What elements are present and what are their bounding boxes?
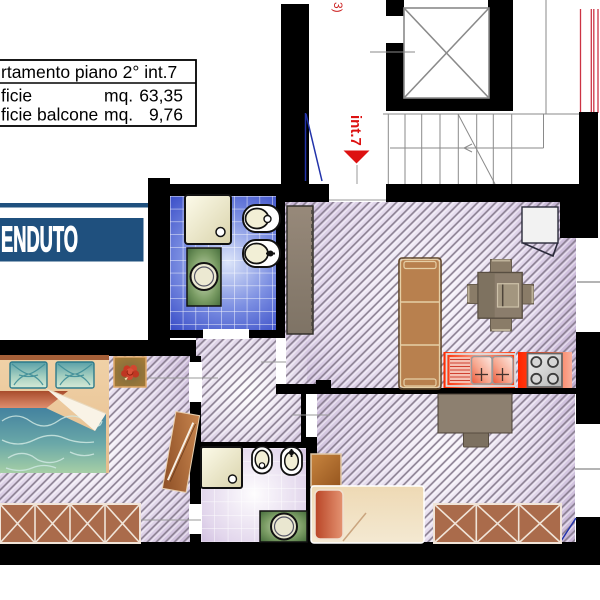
svg-text:ficie: ficie [1, 86, 32, 106]
svg-text:63,35: 63,35 [139, 86, 183, 106]
svg-text:9,76: 9,76 [149, 105, 183, 125]
svg-text:ficie balcone: ficie balcone [1, 105, 98, 125]
svg-text:int.7: int.7 [347, 115, 364, 146]
svg-text:mq.: mq. [104, 86, 133, 106]
svg-text:3): 3) [331, 2, 345, 13]
svg-text:mq.: mq. [104, 105, 133, 125]
svg-text:ENDUTO: ENDUTO [1, 219, 78, 260]
svg-text:rtamento piano 2° int.7: rtamento piano 2° int.7 [1, 62, 177, 82]
